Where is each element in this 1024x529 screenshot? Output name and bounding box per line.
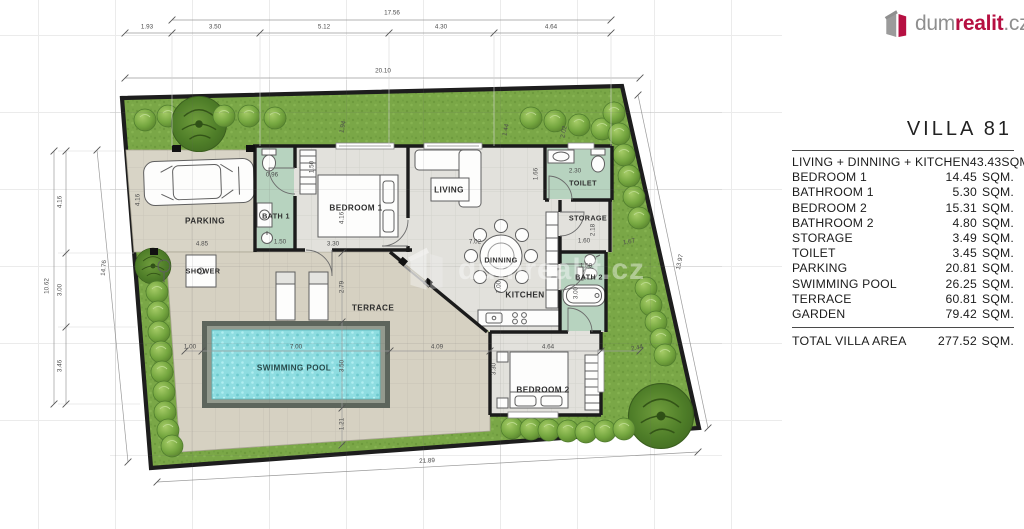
legend-row: BATHROOM 24.80SQM. (792, 216, 1014, 231)
legend-row-lab: TERRACE (792, 292, 935, 307)
legend-row-unit: SQM. (977, 261, 1014, 276)
villa-title: VILLA 81 (792, 118, 1014, 141)
coffee-table (431, 178, 469, 201)
legend-row: BEDROOM 114.45SQM. (792, 170, 1014, 185)
legend-row-lab: SWIMMING POOL (792, 277, 935, 292)
legend-row: PARKING20.81SQM. (792, 261, 1014, 276)
legend-row-val: 26.25 (935, 277, 977, 292)
legend-row-unit: SQM. (977, 231, 1014, 246)
logo-house-icon (884, 8, 910, 40)
logo-text: dumrealit.cz (915, 12, 1024, 36)
legend-row: BATHROOM 15.30SQM. (792, 185, 1014, 200)
legend-row-lab: LIVING + DINNING + KITCHEN (792, 155, 970, 170)
legend-row-val: 43.43 (970, 155, 1002, 170)
legend-row-lab: PARKING (792, 261, 935, 276)
legend-row-unit: SQM. (977, 185, 1014, 200)
total-value: 277.52 (935, 334, 977, 349)
bath1-wc (262, 149, 276, 155)
kitchen-counter (546, 212, 558, 308)
legend-row-lab: GARDEN (792, 307, 935, 322)
legend-row-lab: BATHROOM 2 (792, 216, 935, 231)
legend-row-unit: SQM. (1001, 155, 1024, 170)
legend-rows: LIVING + DINNING + KITCHEN43.43SQM.BEDRO… (792, 151, 1014, 327)
total-label: TOTAL VILLA AREA (792, 334, 935, 349)
legend-total-row: TOTAL VILLA AREA 277.52 SQM. (792, 328, 1014, 349)
legend-row-val: 15.31 (935, 201, 977, 216)
legend-row-lab: STORAGE (792, 231, 935, 246)
legend-row-lab: BATHROOM 1 (792, 185, 935, 200)
swimming-pool (202, 321, 390, 408)
legend-row: LIVING + DINNING + KITCHEN43.43SQM. (792, 155, 1014, 170)
wardrobe-1 (300, 150, 316, 194)
site-logo[interactable]: dumrealit.cz (884, 8, 1024, 40)
floorplan-page: { "logo": {"prefix": "dum", "brand": "re… (0, 0, 1024, 529)
legend-row-unit: SQM. (977, 246, 1014, 261)
legend-row-lab: BEDROOM 1 (792, 170, 935, 185)
shower-tray (186, 255, 216, 287)
legend-row: BEDROOM 215.31SQM. (792, 201, 1014, 216)
legend-row-unit: SQM. (977, 170, 1014, 185)
total-unit: SQM. (977, 334, 1014, 349)
legend-row: GARDEN79.42SQM. (792, 307, 1014, 322)
toilet-wc (591, 149, 605, 155)
legend-row: STORAGE3.49SQM. (792, 231, 1014, 246)
legend-row-unit: SQM. (977, 201, 1014, 216)
area-legend: VILLA 81 LIVING + DINNING + KITCHEN43.43… (792, 118, 1014, 349)
legend-row-val: 3.45 (935, 246, 977, 261)
legend-row: SWIMMING POOL26.25SQM. (792, 277, 1014, 292)
legend-row-unit: SQM. (977, 216, 1014, 231)
legend-row-val: 14.45 (935, 170, 977, 185)
legend-row-val: 79.42 (935, 307, 977, 322)
legend-row-val: 3.49 (935, 231, 977, 246)
legend-row-val: 60.81 (935, 292, 977, 307)
legend-row-unit: SQM. (977, 307, 1014, 322)
legend-row-lab: TOILET (792, 246, 935, 261)
legend-row: TOILET3.45SQM. (792, 246, 1014, 261)
legend-row-val: 5.30 (935, 185, 977, 200)
legend-row-unit: SQM. (977, 292, 1014, 307)
legend-row-val: 4.80 (935, 216, 977, 231)
legend-row-lab: BEDROOM 2 (792, 201, 935, 216)
legend-row-val: 20.81 (935, 261, 977, 276)
legend-row: TERRACE60.81SQM. (792, 292, 1014, 307)
car (143, 158, 254, 206)
legend-row-unit: SQM. (977, 277, 1014, 292)
dining-table (465, 220, 538, 293)
